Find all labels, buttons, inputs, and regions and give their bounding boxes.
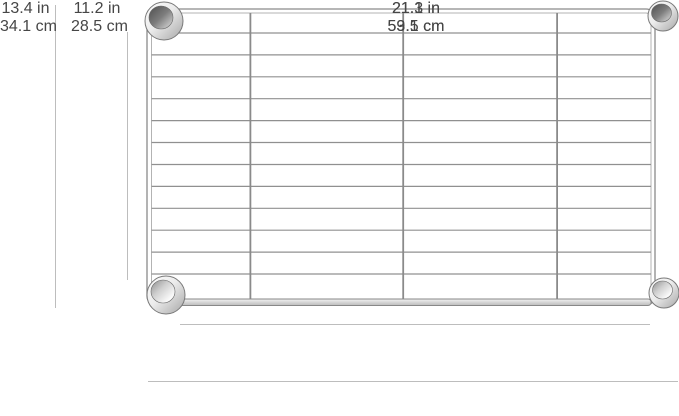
shelf-front-edge bbox=[152, 299, 651, 306]
dim-outer-height-inches: 13.4 in bbox=[0, 0, 51, 18]
dim-shelf-height-metric: 28.5 cm bbox=[71, 18, 123, 36]
collar-bottom-left-icon bbox=[147, 276, 185, 314]
collar-top-left-icon bbox=[145, 2, 183, 40]
dim-shelf-height-inches: 11.2 in bbox=[71, 0, 123, 18]
shelf-grid bbox=[147, 9, 655, 306]
shelf-frame-outer bbox=[147, 9, 655, 305]
dim-label-outer-height: 13.4 in 34.1 cm bbox=[0, 0, 51, 35]
dim-outer-width-inches: 21.3 in bbox=[371, 0, 461, 18]
collar-top-right-icon bbox=[648, 1, 678, 31]
dim-label-shelf-height: 11.2 in 28.5 cm bbox=[71, 0, 123, 35]
product-dimension-diagram: 13.4 in 34.1 cm 11.2 in 28.5 cm 21.1 in … bbox=[0, 0, 679, 416]
shelf-illustration bbox=[0, 0, 679, 416]
dim-outer-width-metric: 59.1 cm bbox=[371, 18, 461, 36]
dim-outer-height-metric: 34.1 cm bbox=[0, 18, 51, 36]
dim-label-outer-width: 21.3 in 59.1 cm bbox=[371, 0, 461, 35]
collar-bottom-right-icon bbox=[649, 278, 679, 308]
